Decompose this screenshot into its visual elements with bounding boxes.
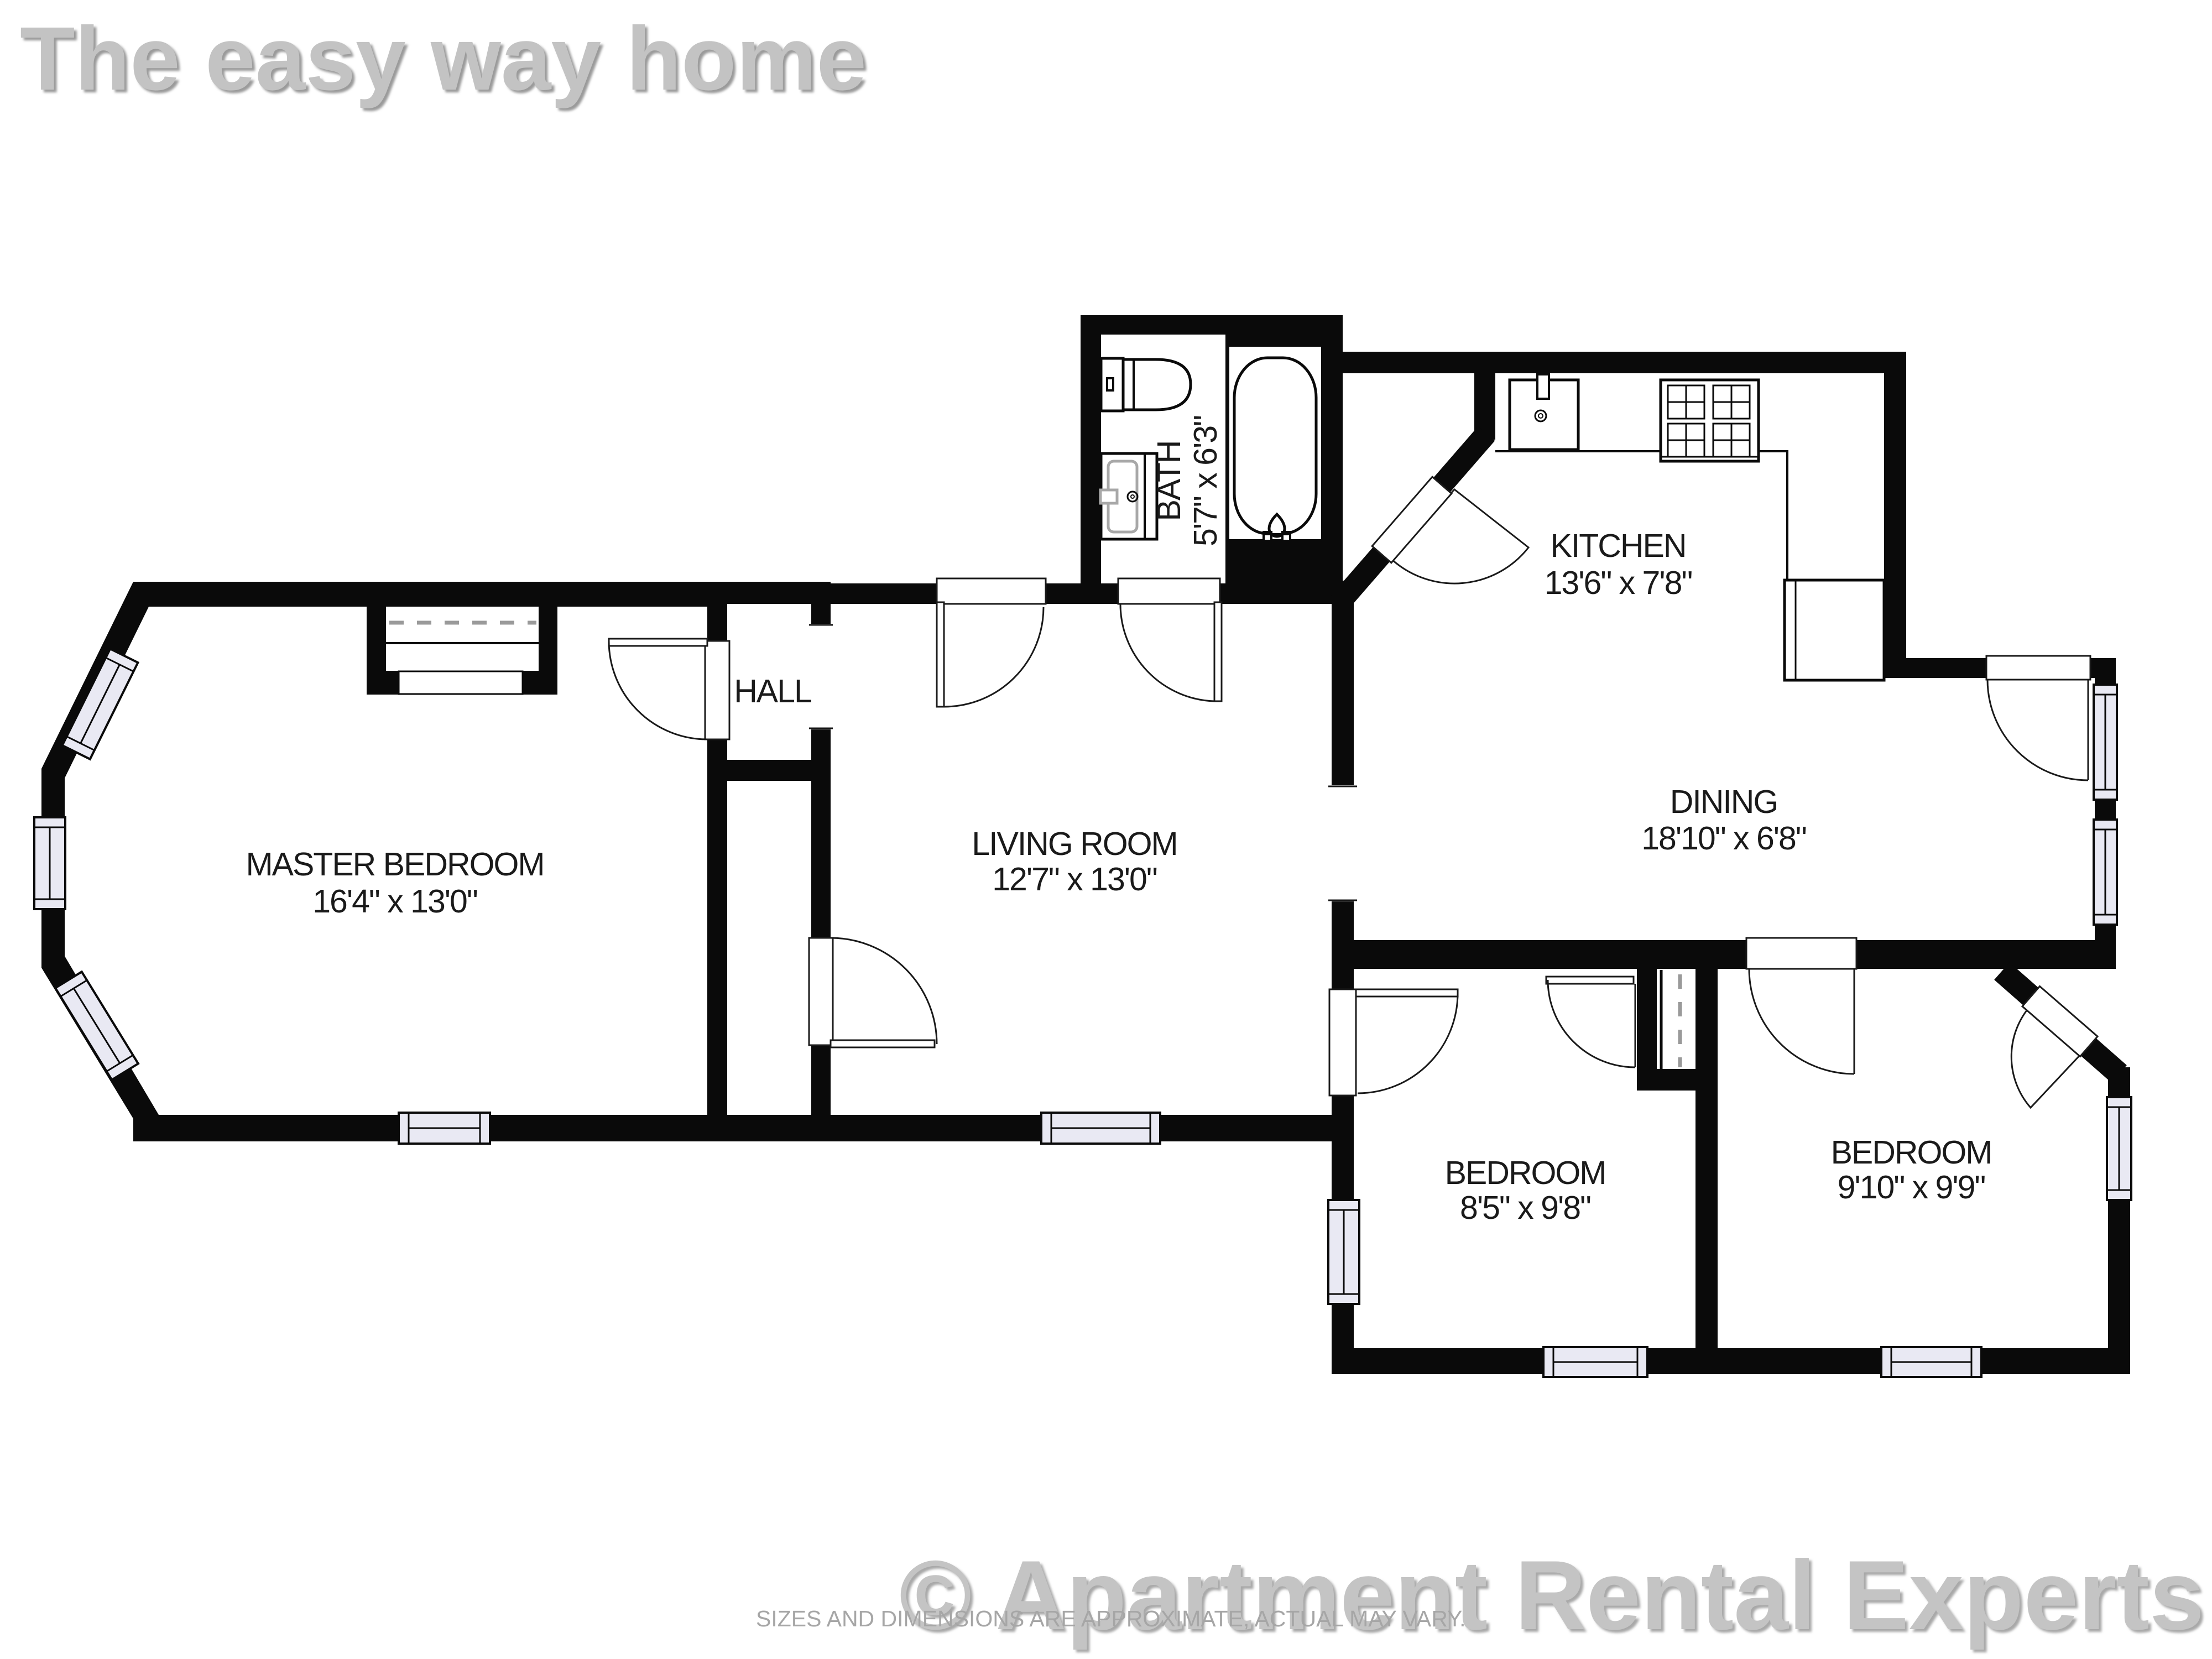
svg-text:8'5" x 9'8": 8'5" x 9'8" — [1460, 1190, 1590, 1226]
svg-text:SIZES AND DIMENSIONS ARE APPRO: SIZES AND DIMENSIONS ARE APPROXIMATE, AC… — [756, 1606, 1466, 1631]
svg-text:16'4" x 13'0": 16'4" x 13'0" — [312, 883, 477, 920]
svg-text:5'7" x 6'3": 5'7" x 6'3" — [1187, 416, 1224, 546]
svg-text:BEDROOM: BEDROOM — [1831, 1134, 1992, 1171]
svg-text:BEDROOM: BEDROOM — [1445, 1155, 1606, 1191]
svg-text:DINING: DINING — [1670, 784, 1778, 820]
svg-text:MASTER BEDROOM: MASTER BEDROOM — [246, 846, 544, 883]
svg-text:18'10" x 6'8": 18'10" x 6'8" — [1641, 820, 1806, 857]
svg-text:KITCHEN: KITCHEN — [1551, 528, 1686, 564]
svg-text:12'7" x 13'0": 12'7" x 13'0" — [992, 861, 1157, 898]
svg-text:© Apartment Rental Experts: © Apartment Rental Experts — [899, 1540, 2204, 1650]
svg-text:HALL: HALL — [734, 673, 811, 709]
svg-text:LIVING ROOM: LIVING ROOM — [972, 826, 1177, 862]
svg-text:13'6" x 7'8": 13'6" x 7'8" — [1545, 565, 1692, 601]
svg-text:BATH: BATH — [1151, 441, 1187, 521]
svg-text:The easy way home: The easy way home — [20, 8, 867, 109]
svg-text:9'10" x 9'9": 9'10" x 9'9" — [1838, 1169, 1985, 1206]
